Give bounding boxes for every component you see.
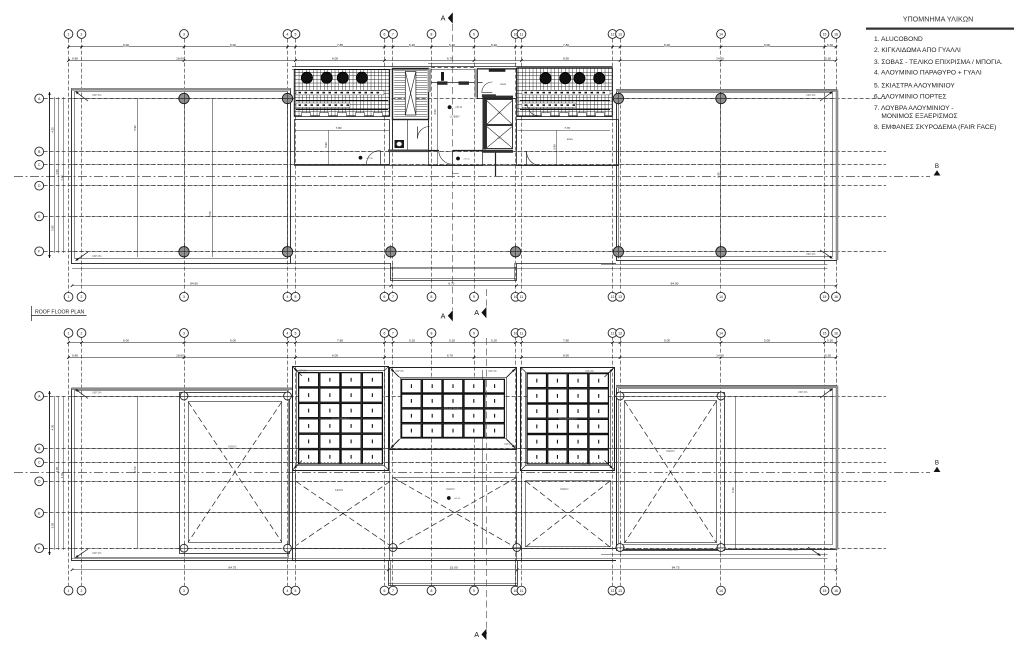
svg-text:ΥΔΡ 2%: ΥΔΡ 2% bbox=[798, 390, 808, 394]
svg-text:1: 1 bbox=[68, 32, 70, 36]
svg-text:ΥΔΡ 2%: ΥΔΡ 2% bbox=[806, 252, 816, 256]
svg-text:+08.10: +08.10 bbox=[463, 159, 471, 161]
svg-text:A: A bbox=[474, 630, 479, 639]
svg-text:ΥΔΡ 2%: ΥΔΡ 2% bbox=[395, 370, 405, 373]
svg-text:7: 7 bbox=[392, 32, 394, 36]
svg-text:18.00: 18.00 bbox=[176, 353, 184, 357]
svg-text:ΜΟΝΙΜΟΣ ΕΞΑΕΡΙΣΜΟΣ: ΜΟΝΙΜΟΣ ΕΞΑΕΡΙΣΜΟΣ bbox=[874, 113, 958, 120]
svg-text:6.00: 6.00 bbox=[332, 353, 338, 357]
svg-text:LIFT: LIFT bbox=[497, 138, 502, 140]
svg-text:B: B bbox=[935, 163, 939, 170]
svg-text:13: 13 bbox=[618, 295, 622, 299]
svg-text:5.30: 5.30 bbox=[827, 43, 833, 47]
svg-text:ΥΔΡ 2%: ΥΔΡ 2% bbox=[92, 254, 102, 258]
svg-text:5.90: 5.90 bbox=[324, 142, 328, 148]
svg-text:5.30: 5.30 bbox=[825, 56, 831, 60]
svg-text:7.80: 7.80 bbox=[563, 338, 569, 342]
svg-text:4.30: 4.30 bbox=[51, 127, 55, 133]
svg-text:ΚΕΝΟ: ΚΕΝΟ bbox=[228, 444, 237, 448]
svg-text:1: 1 bbox=[68, 331, 70, 335]
svg-text:4.30: 4.30 bbox=[51, 424, 55, 430]
svg-text:5: 5 bbox=[295, 589, 297, 593]
svg-text:12: 12 bbox=[611, 589, 615, 593]
svg-text:14: 14 bbox=[719, 589, 723, 593]
svg-text:7.80: 7.80 bbox=[563, 43, 569, 47]
svg-text:11: 11 bbox=[520, 589, 524, 593]
svg-text:16: 16 bbox=[834, 295, 838, 299]
svg-text:5: 5 bbox=[295, 331, 297, 335]
svg-text:+05.05: +05.05 bbox=[454, 498, 462, 500]
svg-text:9: 9 bbox=[473, 589, 475, 593]
svg-text:84.90: 84.90 bbox=[671, 281, 679, 285]
svg-text:1.10: 1.10 bbox=[60, 175, 64, 181]
svg-text:ΚΕΝΟ: ΚΕΝΟ bbox=[666, 449, 675, 453]
svg-text:A: A bbox=[441, 14, 446, 23]
svg-text:8: 8 bbox=[431, 32, 433, 36]
svg-text:LIFT: LIFT bbox=[497, 113, 502, 115]
svg-text:7.80: 7.80 bbox=[336, 126, 342, 130]
svg-text:8. ΕΜΦΑΝΕΣ ΣΚΥΡΟΔΕΜΑ (FAIR FAC: 8. ΕΜΦΑΝΕΣ ΣΚΥΡΟΔΕΜΑ (FAIR FACE) bbox=[874, 124, 996, 131]
svg-text:2: 2 bbox=[81, 32, 83, 36]
svg-text:7.76: 7.76 bbox=[564, 126, 570, 130]
svg-text:8.50: 8.50 bbox=[563, 353, 569, 357]
svg-text:store: store bbox=[500, 82, 506, 86]
svg-text:6.00: 6.00 bbox=[230, 338, 236, 342]
svg-text:8: 8 bbox=[431, 331, 433, 335]
svg-text:6: 6 bbox=[384, 295, 386, 299]
svg-text:12: 12 bbox=[611, 295, 615, 299]
svg-text:ΥΠΟΜΝΗΜΑ ΥΛΙΚΩΝ: ΥΠΟΜΝΗΜΑ ΥΛΙΚΩΝ bbox=[903, 15, 974, 24]
svg-text:14.00: 14.00 bbox=[716, 353, 724, 357]
svg-text:5.30: 5.30 bbox=[731, 487, 735, 493]
svg-text:5.30: 5.30 bbox=[827, 338, 833, 342]
svg-text:5.90: 5.90 bbox=[552, 144, 556, 150]
svg-text:3: 3 bbox=[183, 589, 185, 593]
svg-text:1.50: 1.50 bbox=[55, 169, 59, 175]
svg-text:6.70: 6.70 bbox=[448, 281, 454, 285]
svg-text:16: 16 bbox=[834, 331, 838, 335]
svg-text:15.00: 15.00 bbox=[450, 565, 458, 569]
svg-text:2: 2 bbox=[81, 331, 83, 335]
svg-text:3: 3 bbox=[183, 32, 185, 36]
svg-text:4. ΑΛΟΥΜΙΝΙΟ ΠΑΡΑΘΥΡΟ + ΓΥΑΛΙ: 4. ΑΛΟΥΜΙΝΙΟ ΠΑΡΑΘΥΡΟ + ΓΥΑΛΙ bbox=[874, 69, 982, 76]
svg-text:B: B bbox=[935, 460, 939, 467]
svg-text:1.10: 1.10 bbox=[60, 472, 64, 478]
svg-text:2: 2 bbox=[81, 589, 83, 593]
svg-text:12: 12 bbox=[611, 331, 615, 335]
svg-text:2. ΚΙΓΚΛΙΔΩΜΑ ΑΠΟ ΓΥΑΛΛΙ: 2. ΚΙΓΚΛΙΔΩΜΑ ΑΠΟ ΓΥΑΛΛΙ bbox=[874, 47, 961, 54]
svg-text:F: F bbox=[38, 250, 40, 254]
svg-text:9: 9 bbox=[473, 331, 475, 335]
svg-text:14: 14 bbox=[719, 295, 723, 299]
svg-text:13: 13 bbox=[618, 331, 622, 335]
svg-text:5.20: 5.20 bbox=[491, 43, 497, 47]
svg-text:7: 7 bbox=[392, 589, 394, 593]
svg-text:ΚΕΝΟ: ΚΕΝΟ bbox=[560, 487, 569, 491]
svg-text:5.00: 5.00 bbox=[664, 43, 670, 47]
svg-text:8: 8 bbox=[431, 589, 433, 593]
svg-text:6.00: 6.00 bbox=[332, 56, 338, 60]
svg-text:2: 2 bbox=[81, 295, 83, 299]
svg-text:8.50: 8.50 bbox=[208, 211, 212, 217]
svg-text:ΥΔΡ 2%: ΥΔΡ 2% bbox=[504, 443, 514, 446]
svg-text:8.50: 8.50 bbox=[563, 56, 569, 60]
svg-text:5.20: 5.20 bbox=[491, 338, 497, 342]
svg-text:11: 11 bbox=[520, 32, 524, 36]
svg-text:8: 8 bbox=[431, 295, 433, 299]
svg-text:15: 15 bbox=[823, 32, 827, 36]
svg-text:7: 7 bbox=[392, 295, 394, 299]
svg-text:14.00: 14.00 bbox=[716, 56, 724, 60]
svg-text:11.50: 11.50 bbox=[133, 466, 137, 473]
svg-text:ΚΕΝΟ: ΚΕΝΟ bbox=[335, 488, 344, 492]
svg-text:6: 6 bbox=[384, 32, 386, 36]
svg-text:ROOF FLOOR PLAN: ROOF FLOOR PLAN bbox=[35, 310, 85, 316]
svg-text:7. ΛΟΥΒΡΑ ΑΛΟΥΜΙΝΙΟΥ -: 7. ΛΟΥΒΡΑ ΑΛΟΥΜΙΝΙΟΥ - bbox=[874, 105, 953, 112]
svg-text:ΥΔΡ 2%: ΥΔΡ 2% bbox=[488, 370, 498, 373]
svg-text:6.00: 6.00 bbox=[230, 43, 236, 47]
svg-text:4: 4 bbox=[287, 295, 289, 299]
svg-text:5.85: 5.85 bbox=[51, 225, 55, 231]
svg-text:+07.90: +07.90 bbox=[366, 158, 374, 160]
svg-text:1.50: 1.50 bbox=[55, 466, 59, 472]
svg-text:6.70: 6.70 bbox=[447, 353, 453, 357]
svg-text:16: 16 bbox=[834, 589, 838, 593]
svg-text:12: 12 bbox=[611, 32, 615, 36]
svg-text:5: 5 bbox=[295, 32, 297, 36]
svg-text:SOLAR PANELS: SOLAR PANELS bbox=[331, 417, 349, 420]
svg-text:5.30: 5.30 bbox=[825, 353, 831, 357]
svg-text:5. ΣΚΙΑΣΤΡΑ ΑΛΟΥΜΙΝΙΟΥ: 5. ΣΚΙΑΣΤΡΑ ΑΛΟΥΜΙΝΙΟΥ bbox=[874, 82, 955, 89]
svg-text:7.85: 7.85 bbox=[337, 338, 343, 342]
svg-text:ΥΔΡ 2%: ΥΔΡ 2% bbox=[298, 370, 308, 373]
svg-text:6.00: 6.00 bbox=[123, 43, 129, 47]
svg-text:0.80: 0.80 bbox=[72, 56, 78, 60]
svg-text:15: 15 bbox=[823, 295, 827, 299]
svg-text:4: 4 bbox=[287, 32, 289, 36]
svg-text:SOLAR PANELS: SOLAR PANELS bbox=[444, 407, 462, 410]
svg-text:6. ΑΛΟΥΜΙΝΙΟ ΠΟΡΤΕΣ: 6. ΑΛΟΥΜΙΝΙΟ ΠΟΡΤΕΣ bbox=[874, 94, 947, 101]
svg-text:5.85: 5.85 bbox=[51, 522, 55, 528]
svg-text:5.00: 5.00 bbox=[764, 43, 770, 47]
svg-text:ΥΔΡ 2%: ΥΔΡ 2% bbox=[92, 391, 102, 395]
svg-text:6.00: 6.00 bbox=[123, 338, 129, 342]
svg-text:15: 15 bbox=[823, 331, 827, 335]
svg-text:5.30: 5.30 bbox=[449, 338, 455, 342]
svg-text:6: 6 bbox=[384, 589, 386, 593]
svg-text:5.00: 5.00 bbox=[664, 338, 670, 342]
svg-text:A: A bbox=[441, 311, 446, 320]
svg-text:5.20: 5.20 bbox=[409, 43, 415, 47]
svg-text:16: 16 bbox=[834, 32, 838, 36]
svg-text:1: 1 bbox=[68, 589, 70, 593]
svg-text:7.85: 7.85 bbox=[337, 43, 343, 47]
svg-text:1. ALUCOBOND: 1. ALUCOBOND bbox=[874, 36, 923, 43]
svg-text:84.75: 84.75 bbox=[229, 565, 237, 569]
svg-text:84.75: 84.75 bbox=[672, 565, 680, 569]
svg-text:13: 13 bbox=[618, 32, 622, 36]
svg-text:ΥΔΡ 2%: ΥΔΡ 2% bbox=[92, 551, 102, 555]
svg-text:11: 11 bbox=[520, 331, 524, 335]
svg-text:14: 14 bbox=[719, 331, 723, 335]
svg-text:ΥΔΡ 2%: ΥΔΡ 2% bbox=[806, 93, 816, 97]
svg-text:7: 7 bbox=[392, 331, 394, 335]
svg-text:4: 4 bbox=[287, 589, 289, 593]
svg-text:5.90: 5.90 bbox=[133, 125, 137, 131]
svg-text:ΥΔΡ 2%: ΥΔΡ 2% bbox=[585, 370, 595, 373]
svg-text:5.30: 5.30 bbox=[449, 43, 455, 47]
svg-text:84.90: 84.90 bbox=[190, 281, 198, 285]
svg-text:3: 3 bbox=[183, 331, 185, 335]
svg-text:LOBBY: LOBBY bbox=[450, 114, 460, 118]
svg-text:15: 15 bbox=[823, 589, 827, 593]
svg-text:A: A bbox=[474, 308, 479, 317]
svg-text:0.80: 0.80 bbox=[72, 353, 78, 357]
svg-text:5.90: 5.90 bbox=[717, 172, 721, 178]
svg-text:ΥΔΡ 2%: ΥΔΡ 2% bbox=[92, 93, 102, 97]
svg-text:5.00: 5.00 bbox=[764, 338, 770, 342]
svg-text:3. ΣΟΒΑΣ - ΤΕΛΙΚΟ ΕΠΙΧΡΙΣΜΑ /: 3. ΣΟΒΑΣ - ΤΕΛΙΚΟ ΕΠΙΧΡΙΣΜΑ / ΜΠΟΓΙΑ. bbox=[874, 59, 1003, 66]
svg-text:+08.10: +08.10 bbox=[455, 107, 463, 109]
svg-text:18.00: 18.00 bbox=[176, 56, 184, 60]
svg-text:ΚΕΝΟ: ΚΕΝΟ bbox=[446, 487, 455, 491]
svg-text:13: 13 bbox=[618, 589, 622, 593]
svg-text:4: 4 bbox=[287, 331, 289, 335]
svg-text:1: 1 bbox=[68, 295, 70, 299]
svg-text:SOLAR PANELS: SOLAR PANELS bbox=[559, 418, 577, 421]
svg-text:11: 11 bbox=[520, 295, 524, 299]
svg-text:9: 9 bbox=[473, 295, 475, 299]
svg-text:4.50: 4.50 bbox=[433, 109, 437, 115]
svg-text:F: F bbox=[38, 547, 40, 551]
svg-text:3: 3 bbox=[183, 295, 185, 299]
svg-text:9: 9 bbox=[473, 32, 475, 36]
svg-text:6: 6 bbox=[384, 331, 386, 335]
svg-text:14: 14 bbox=[719, 32, 723, 36]
svg-text:5.20: 5.20 bbox=[409, 338, 415, 342]
svg-text:ΥΔΡ 2%: ΥΔΡ 2% bbox=[582, 464, 592, 467]
svg-text:store: store bbox=[567, 137, 574, 141]
svg-text:5: 5 bbox=[295, 295, 297, 299]
